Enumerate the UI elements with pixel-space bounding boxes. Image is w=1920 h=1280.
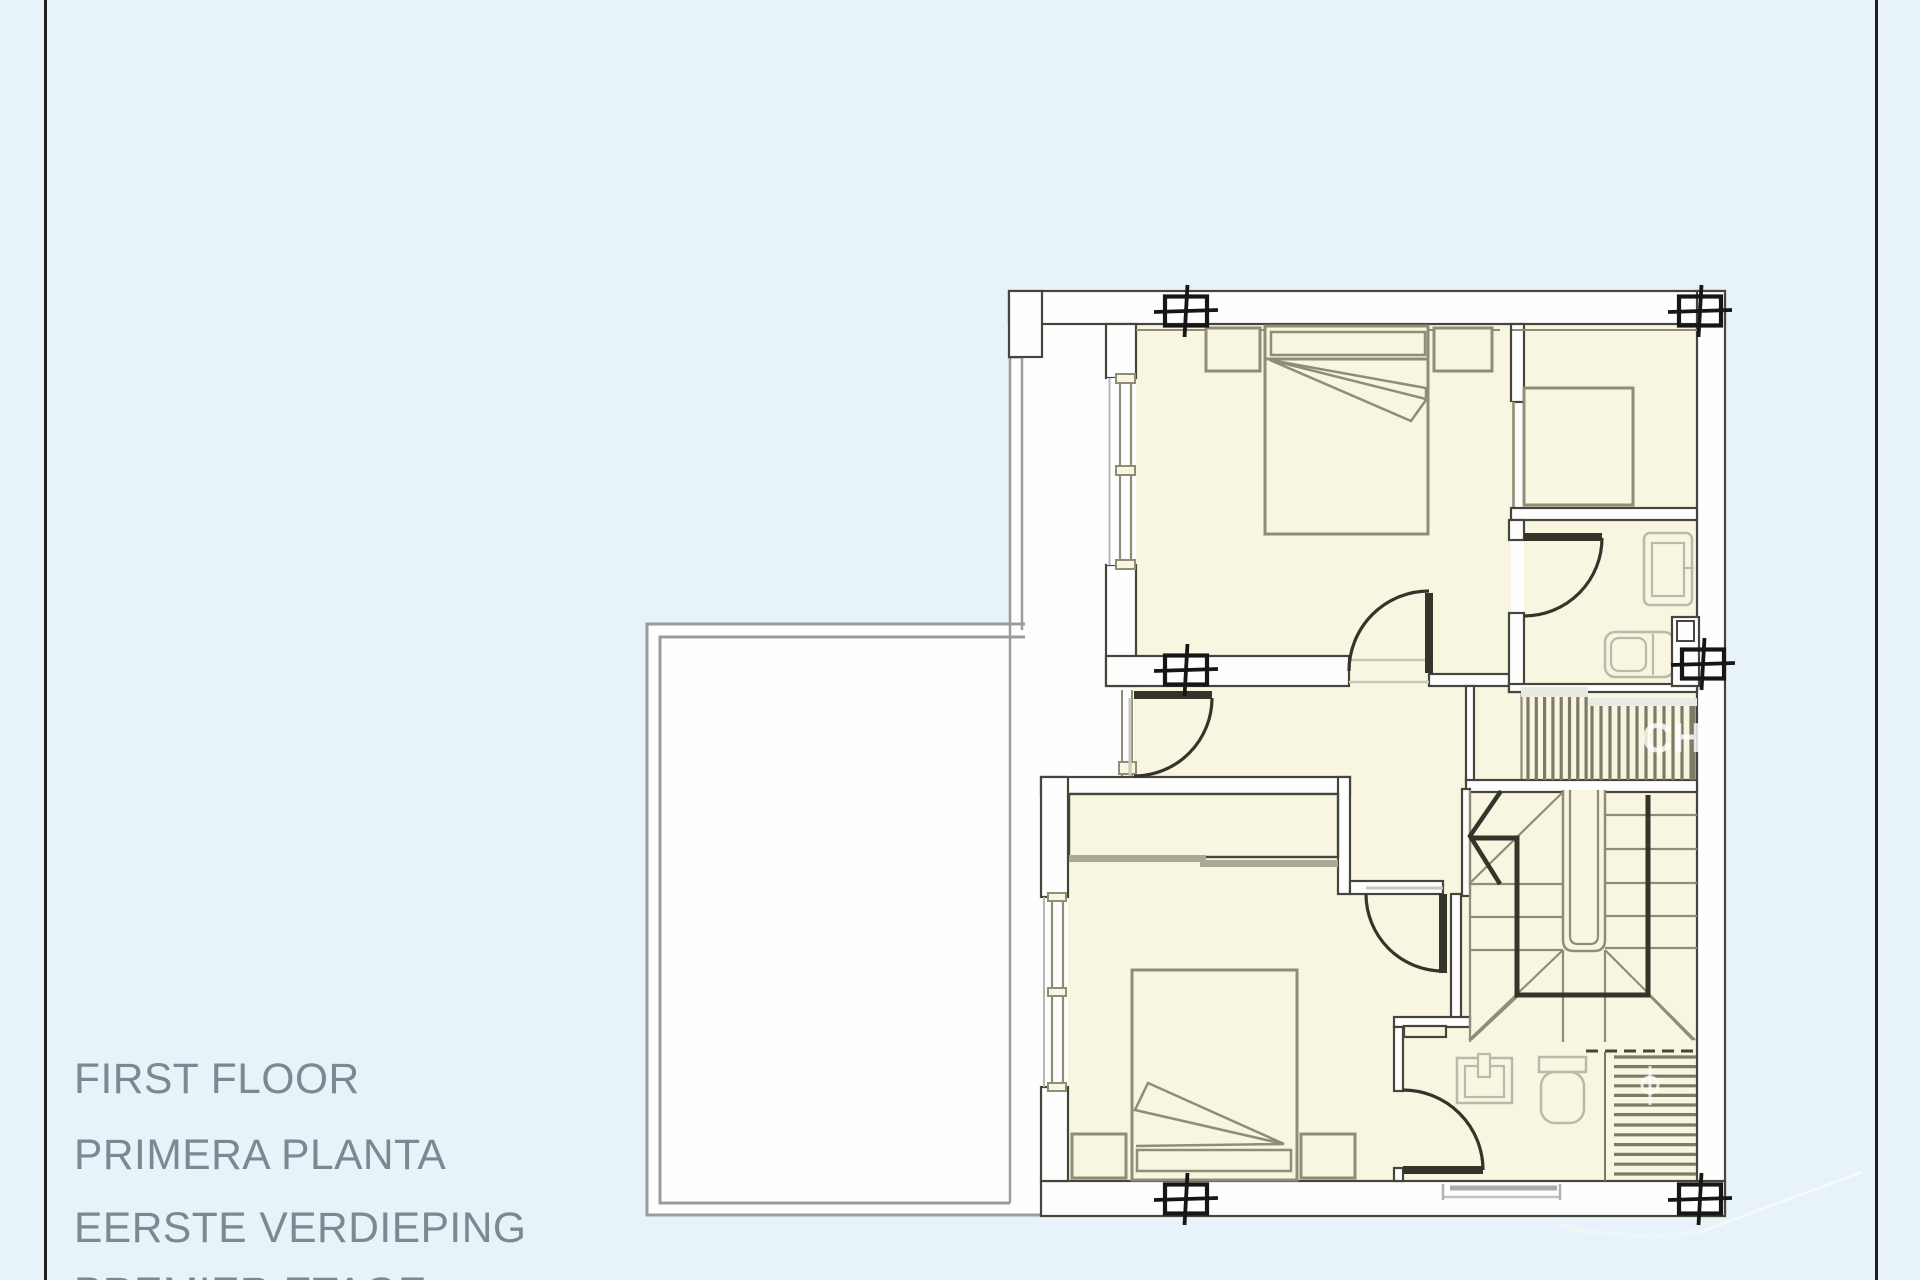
svg-text:EERSTE VERDIEPING: EERSTE VERDIEPING: [74, 1205, 527, 1252]
svg-text:FIRST FLOOR: FIRST FLOOR: [74, 1056, 360, 1103]
svg-text:PREMIER ETAGE: PREMIER ETAGE: [74, 1270, 427, 1280]
svg-text:CH: CH: [1642, 714, 1703, 761]
svg-text:PRIMERA PLANTA: PRIMERA PLANTA: [74, 1132, 446, 1179]
